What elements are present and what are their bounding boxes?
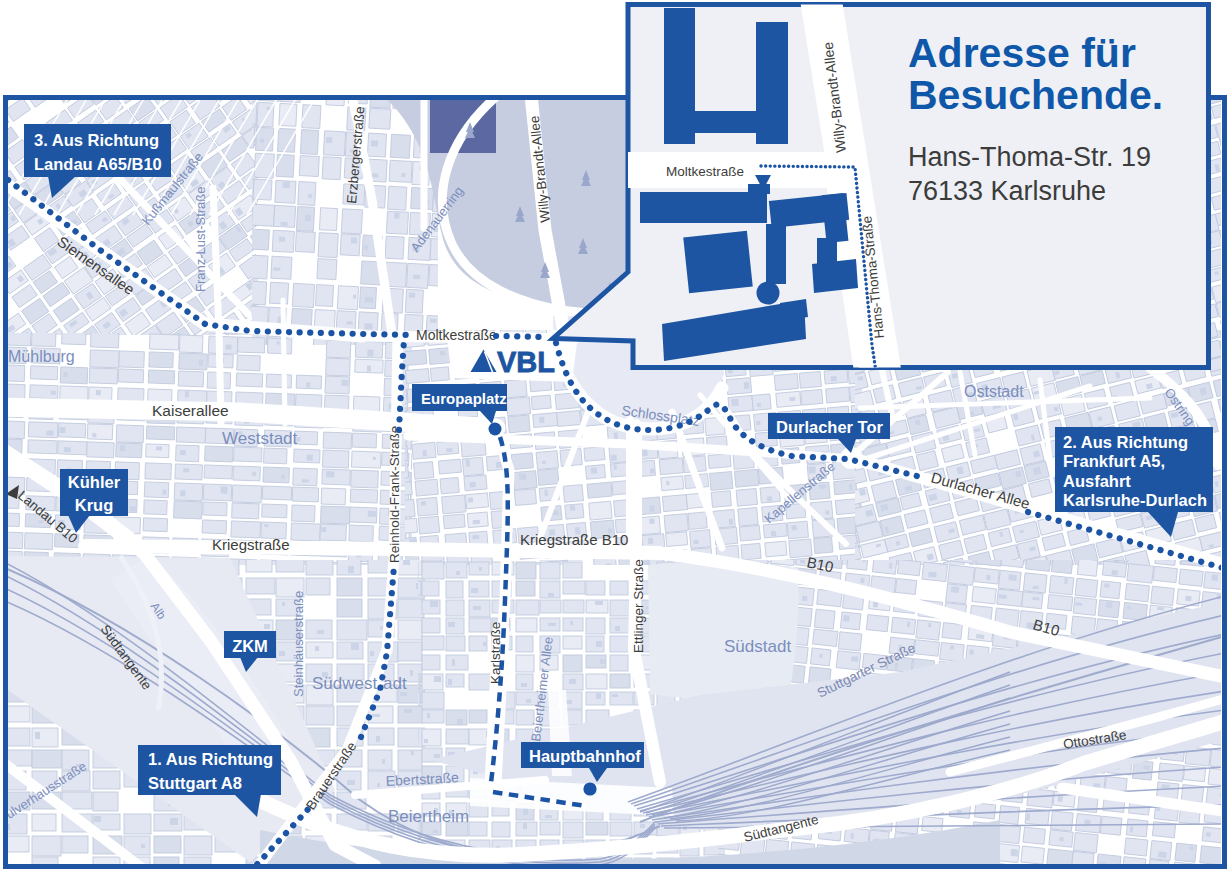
svg-text:Hans-Thoma-Str. 19: Hans-Thoma-Str. 19	[908, 142, 1151, 172]
svg-text:Stuttgart A8: Stuttgart A8	[148, 774, 242, 792]
svg-text:76133 Karlsruhe: 76133 Karlsruhe	[908, 176, 1106, 206]
svg-text:adt: adt	[383, 674, 407, 693]
svg-text:Kriegstraße B10: Kriegstraße B10	[520, 531, 628, 548]
svg-text:Krug: Krug	[75, 496, 114, 514]
svg-text:ZKM: ZKM	[232, 637, 268, 655]
svg-text:Mühlburg: Mühlburg	[8, 348, 75, 365]
svg-text:Oststadt: Oststadt	[964, 383, 1024, 400]
svg-text:Karlsruhe-Durlach: Karlsruhe-Durlach	[1063, 491, 1207, 509]
svg-text:Steinhäuserstraße: Steinhäuserstraße	[291, 591, 306, 697]
svg-text:Ausfahrt: Ausfahrt	[1063, 472, 1131, 490]
svg-text:Südwest: Südwest	[312, 674, 377, 693]
svg-text:Weststadt: Weststadt	[222, 429, 298, 448]
svg-text:3. Aus Richtung: 3. Aus Richtung	[34, 131, 159, 149]
svg-text:Reinhold-Frank-Straße: Reinhold-Frank-Straße	[387, 426, 402, 563]
svg-text:Kriegstraße: Kriegstraße	[212, 536, 290, 553]
svg-text:2. Aus Richtung: 2. Aus Richtung	[1063, 433, 1188, 451]
svg-text:Beiertheim: Beiertheim	[388, 807, 469, 826]
svg-text:Europaplatz: Europaplatz	[421, 390, 507, 407]
svg-text:Moltkestraße: Moltkestraße	[416, 327, 497, 343]
svg-text:Moltkestraße: Moltkestraße	[666, 164, 744, 179]
svg-text:Besuchende.: Besuchende.	[908, 72, 1163, 118]
svg-text:Franz-Lust-Straße: Franz-Lust-Straße	[193, 187, 208, 292]
svg-text:Ettlinger Straße: Ettlinger Straße	[631, 559, 646, 653]
svg-text:Adresse für: Adresse für	[908, 30, 1136, 76]
svg-text:Landau A65/B10: Landau A65/B10	[34, 155, 162, 173]
svg-text:Südstadt: Südstadt	[724, 637, 791, 656]
svg-text:1. Aus Richtung: 1. Aus Richtung	[148, 750, 273, 768]
svg-text:Kaiserallee: Kaiserallee	[152, 402, 229, 419]
svg-text:Durlacher Tor: Durlacher Tor	[776, 418, 884, 436]
svg-text:Frankfurt A5,: Frankfurt A5,	[1063, 452, 1165, 470]
svg-text:VBL: VBL	[497, 346, 555, 378]
svg-text:Kühler: Kühler	[68, 473, 121, 491]
svg-text:Hauptbahnhof: Hauptbahnhof	[529, 747, 641, 765]
